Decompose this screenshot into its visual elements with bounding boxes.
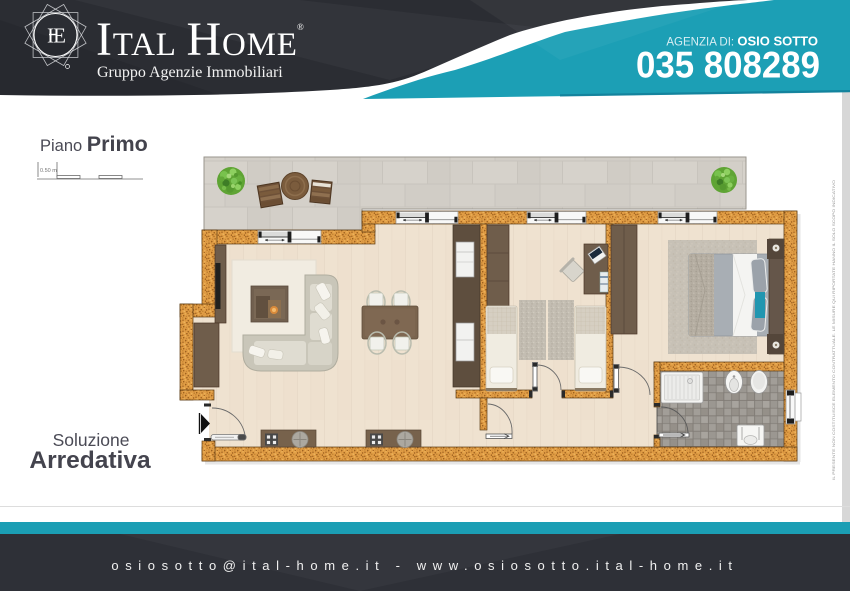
svg-text:IL PRESENTE NON COSTITUISCE EL: IL PRESENTE NON COSTITUISCE ELEMENTO CON… <box>831 180 836 480</box>
svg-text:®: ® <box>297 22 304 32</box>
svg-text:osiosotto@ital-home.it - www.o: osiosotto@ital-home.it - www.osiosotto.i… <box>111 558 738 573</box>
svg-text:Gruppo Agenzie Immobiliari: Gruppo Agenzie Immobiliari <box>97 64 283 81</box>
svg-text:Arredativa: Arredativa <box>29 447 151 474</box>
svg-text:0.50 m: 0.50 m <box>40 168 57 174</box>
svg-text:035 808289: 035 808289 <box>636 44 820 86</box>
svg-text:E: E <box>53 24 66 48</box>
